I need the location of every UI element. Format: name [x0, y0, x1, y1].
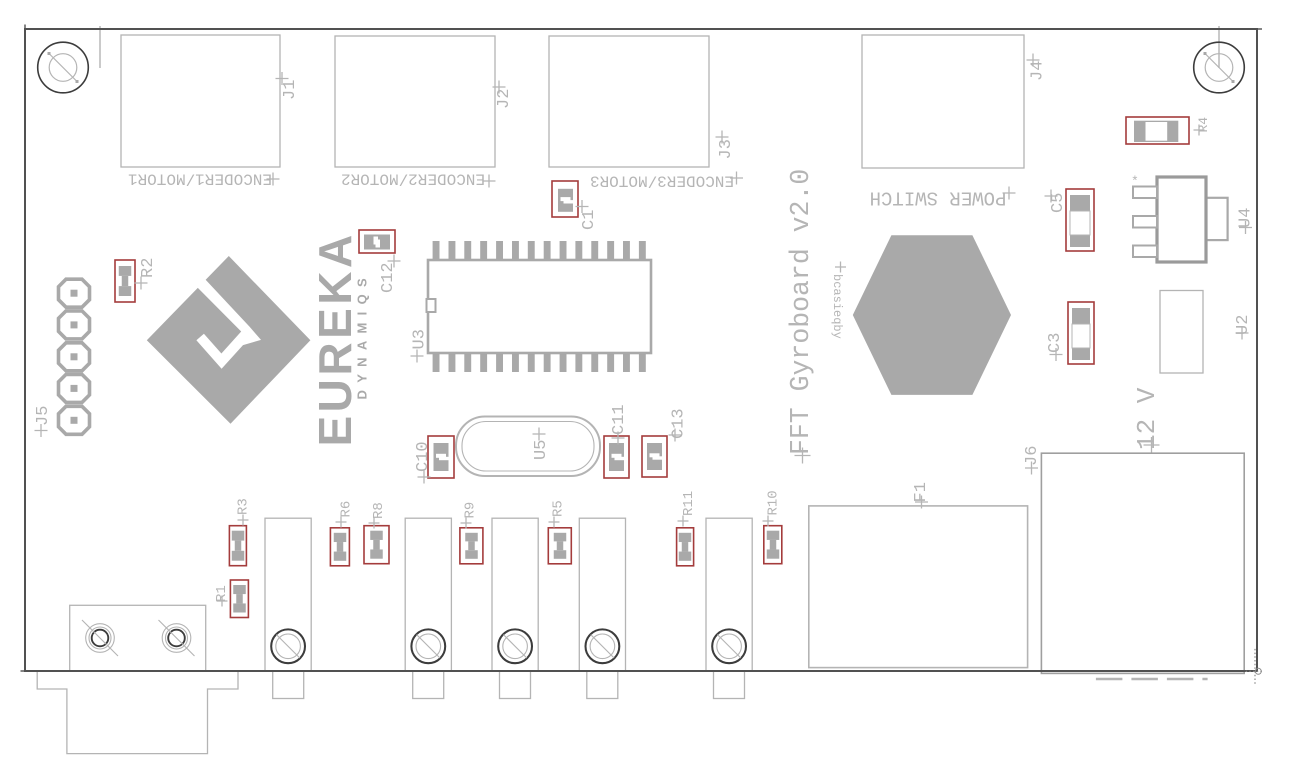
svg-text:C10: C10: [414, 441, 433, 472]
svg-text:R8: R8: [371, 502, 387, 519]
svg-text:ENCODER3/MOTOR3: ENCODER3/MOTOR3: [590, 172, 734, 190]
svg-text:J2: J2: [495, 89, 514, 109]
svg-text:C1: C1: [580, 210, 599, 230]
svg-text:U5: U5: [532, 440, 551, 460]
svg-text:R9: R9: [463, 502, 479, 519]
svg-text:J4: J4: [1029, 61, 1048, 81]
svg-text:R6: R6: [339, 501, 355, 518]
svg-text:J3: J3: [717, 139, 736, 159]
svg-text:EUREKA: EUREKA: [309, 231, 361, 446]
svg-text:POWER SWITCH: POWER SWITCH: [870, 187, 1007, 209]
svg-text:bcasieqby: bcasieqby: [830, 274, 844, 339]
svg-text:J1: J1: [281, 80, 300, 100]
svg-text:FFT Gyroboard v2.0: FFT Gyroboard v2.0: [786, 169, 816, 455]
svg-text:U2: U2: [1234, 315, 1253, 335]
svg-text:12 V: 12 V: [1132, 387, 1162, 450]
svg-text:J5: J5: [34, 406, 53, 426]
svg-text:J6: J6: [1023, 446, 1042, 466]
svg-text:*: *: [1131, 174, 1139, 189]
svg-text:R10: R10: [766, 490, 782, 515]
svg-text:R3: R3: [236, 498, 252, 515]
svg-text:R11: R11: [681, 491, 697, 516]
svg-text:R2: R2: [139, 258, 158, 278]
svg-text:C11: C11: [610, 404, 629, 435]
svg-text:ENCODER2/MOTOR2: ENCODER2/MOTOR2: [341, 170, 485, 188]
svg-text:C12: C12: [379, 262, 398, 293]
svg-text:ENCODER1/MOTOR1: ENCODER1/MOTOR1: [128, 170, 272, 188]
svg-text:R5: R5: [551, 500, 567, 517]
svg-text:DYNAMIQS: DYNAMIQS: [355, 271, 370, 399]
svg-text:U3: U3: [411, 329, 430, 349]
